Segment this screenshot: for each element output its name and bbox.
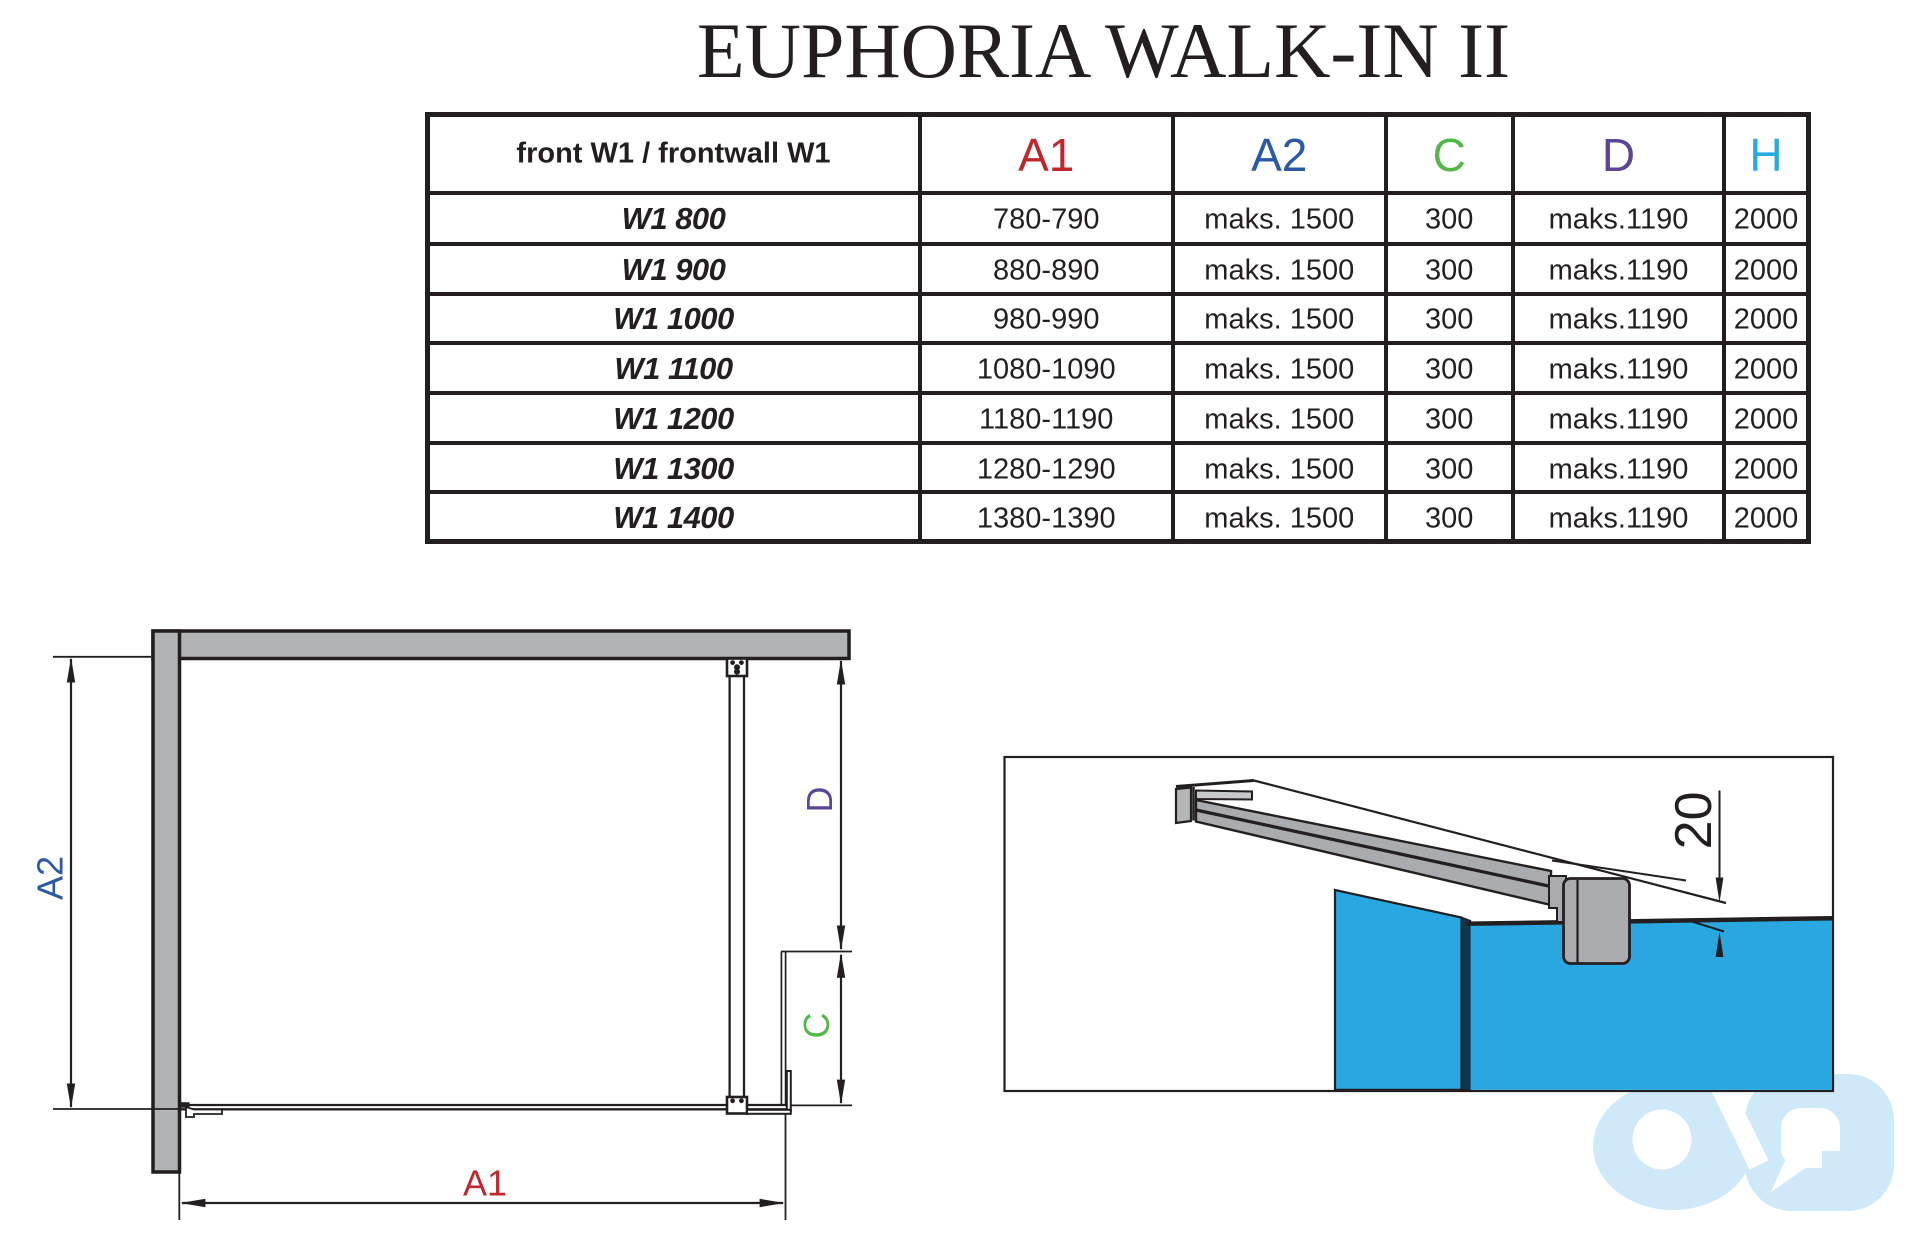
svg-text:C: C <box>796 1013 837 1039</box>
svg-text:20: 20 <box>1665 791 1723 849</box>
svg-text:A2: A2 <box>30 856 71 900</box>
svg-text:D: D <box>799 787 840 813</box>
svg-text:A1: A1 <box>463 1163 507 1204</box>
